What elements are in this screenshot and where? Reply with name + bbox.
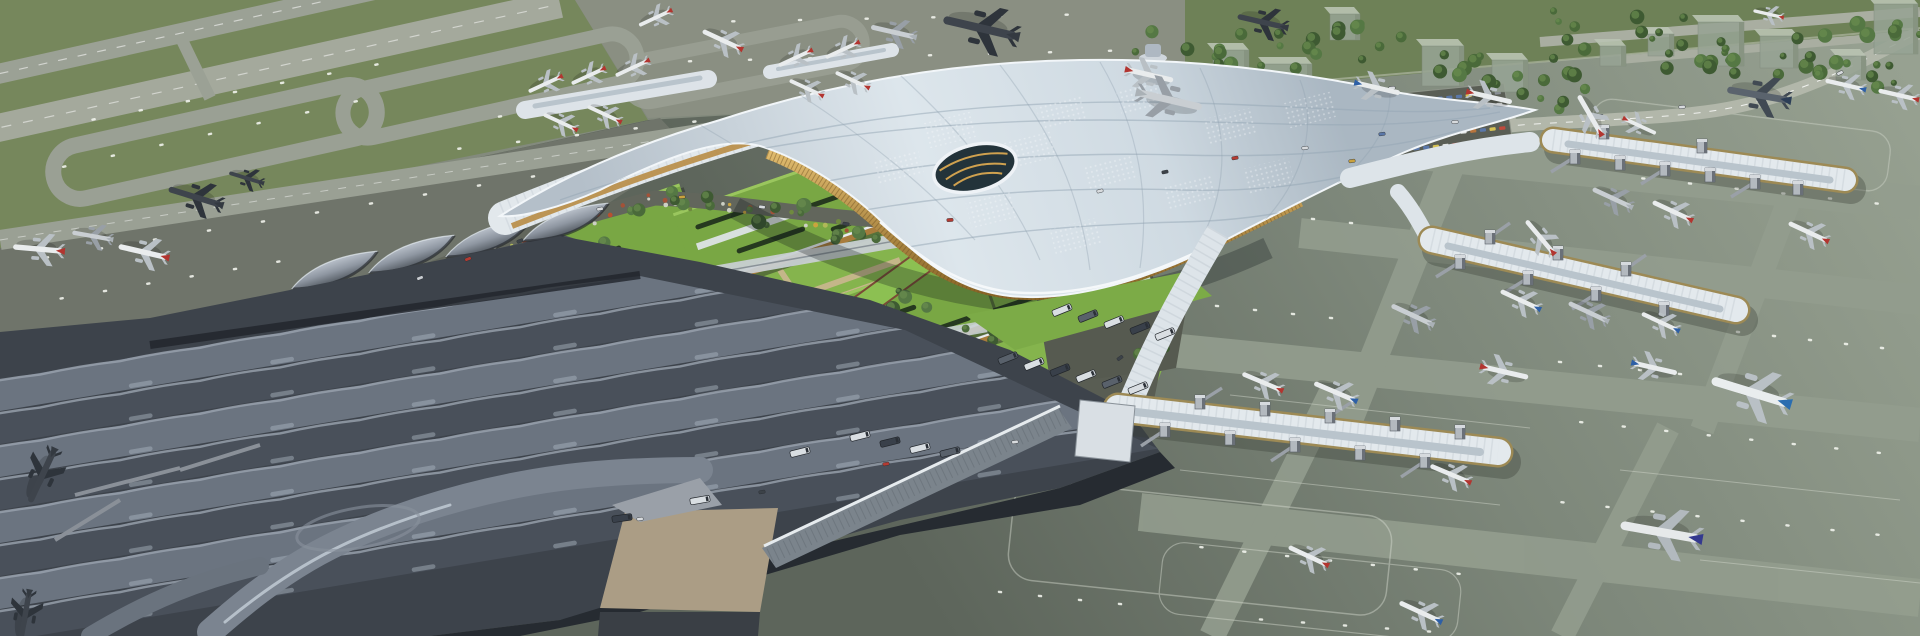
tree — [1649, 36, 1655, 42]
tree — [1665, 49, 1673, 57]
flower-dot — [813, 223, 818, 228]
flower-dot — [647, 193, 651, 197]
tower-cab — [1145, 44, 1161, 57]
tree — [1726, 53, 1741, 68]
tree — [1655, 28, 1663, 36]
flower-dot — [608, 213, 613, 218]
flower-dot — [621, 203, 625, 207]
tree — [1676, 39, 1688, 51]
tree — [1780, 53, 1787, 60]
tree — [1630, 10, 1645, 25]
white-dash — [688, 60, 693, 63]
white-dash — [1064, 13, 1069, 15]
tree — [1557, 96, 1569, 108]
flower-dot — [836, 219, 841, 224]
jet-bridge-tower — [1455, 425, 1465, 439]
flower-dot — [688, 207, 692, 211]
tree — [1555, 18, 1562, 25]
tree — [1829, 55, 1844, 70]
tree — [1866, 70, 1878, 82]
tree — [1537, 95, 1544, 102]
airport-aerial-rendering — [0, 0, 1920, 636]
tree — [1891, 80, 1897, 86]
tree — [1132, 48, 1140, 56]
tree — [1277, 42, 1284, 49]
car — [1379, 132, 1386, 136]
tree — [1214, 46, 1227, 59]
tree — [1805, 51, 1816, 62]
white-dash — [1301, 621, 1306, 624]
tree — [1396, 32, 1407, 43]
tree — [1350, 20, 1365, 35]
tree — [1181, 42, 1195, 56]
tree — [1660, 61, 1673, 74]
tree — [797, 210, 804, 217]
tree — [962, 325, 970, 333]
tree — [1580, 84, 1590, 94]
tree — [1550, 7, 1557, 14]
flower-dot — [789, 210, 794, 215]
flower-dot — [728, 203, 731, 206]
parked-car — [1456, 94, 1463, 98]
jet-bridge-tower — [1705, 168, 1715, 182]
flower-dot — [823, 223, 828, 228]
car — [1679, 105, 1686, 109]
tree — [1729, 67, 1740, 78]
tree — [1516, 87, 1529, 100]
tree — [1635, 26, 1648, 39]
jet-bridge-tower — [1355, 446, 1365, 460]
plaza-parking-face — [598, 612, 760, 636]
flower-dot — [727, 208, 732, 213]
tree — [1791, 32, 1803, 44]
tree — [632, 203, 645, 216]
car — [759, 205, 766, 209]
parked-car — [1480, 128, 1487, 132]
flower-dot — [721, 202, 725, 206]
tree — [1290, 62, 1302, 74]
tree — [1433, 64, 1447, 78]
plaza-deck — [600, 508, 778, 612]
jet-bridge-tower — [1390, 417, 1400, 431]
building — [1754, 29, 1798, 68]
tree — [1578, 42, 1592, 56]
jet-bridge-tower — [1260, 402, 1270, 416]
tree — [871, 234, 880, 243]
tree — [1818, 28, 1832, 42]
jet-bridge-tower — [1615, 156, 1625, 170]
tree — [701, 191, 714, 204]
white-dash — [798, 19, 803, 21]
tree — [770, 202, 781, 213]
car — [1012, 440, 1019, 444]
white-dash — [1343, 624, 1348, 627]
tree — [1885, 62, 1893, 70]
jet-bridge-tower — [1793, 181, 1803, 195]
jet-bridge-tower — [1225, 431, 1235, 445]
tree — [1843, 59, 1851, 67]
car — [947, 218, 954, 222]
tree — [1145, 25, 1158, 38]
tree — [1717, 37, 1726, 46]
tree — [1476, 52, 1484, 60]
tree — [670, 196, 680, 206]
car — [1452, 120, 1459, 124]
flower-dot — [663, 198, 668, 203]
pier-c-junction-block — [1075, 400, 1135, 462]
tree — [1375, 42, 1385, 52]
tree — [1235, 28, 1247, 40]
tree — [1849, 16, 1865, 32]
flower-dot — [647, 197, 650, 200]
white-dash — [928, 54, 933, 57]
flower-dot — [593, 221, 597, 225]
tree — [1567, 67, 1582, 82]
tree — [1873, 61, 1881, 69]
jet-bridge-tower — [1697, 139, 1707, 153]
tree — [1549, 54, 1558, 63]
tree — [1888, 24, 1902, 38]
tree — [1569, 21, 1580, 32]
flower-dot — [845, 228, 849, 232]
tree — [1562, 34, 1574, 46]
tree — [1452, 67, 1467, 82]
white-dash — [1427, 630, 1432, 633]
car — [637, 517, 644, 521]
tree — [1538, 74, 1550, 86]
tree — [1440, 50, 1449, 59]
white-dash — [1108, 49, 1113, 52]
tree — [1358, 55, 1366, 63]
white-dash — [1385, 627, 1390, 630]
parked-car — [1489, 127, 1496, 131]
flower-dot — [804, 224, 808, 228]
tree — [1310, 48, 1322, 60]
tree — [852, 226, 865, 239]
tree — [1702, 59, 1717, 74]
white-dash — [864, 17, 869, 19]
parked-car — [1499, 126, 1506, 130]
white-dash — [1259, 618, 1264, 621]
tree — [921, 302, 932, 313]
car — [1349, 159, 1356, 163]
white-dash — [1048, 51, 1053, 54]
white-dash — [748, 58, 753, 61]
tree — [1679, 13, 1688, 22]
car — [679, 195, 686, 199]
flower-dot — [663, 203, 668, 208]
white-dash — [931, 16, 936, 18]
white-dash — [731, 20, 736, 22]
tree — [1331, 26, 1345, 40]
car — [1302, 146, 1309, 150]
tree — [1814, 70, 1823, 79]
tree — [1512, 71, 1523, 82]
airport-scene — [0, 0, 1920, 636]
